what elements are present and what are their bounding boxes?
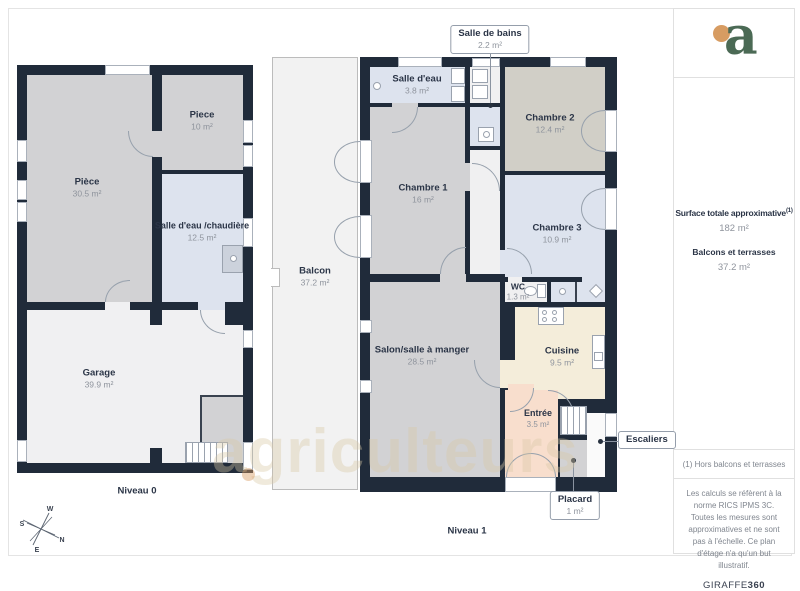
legal-text: Les calculs se réfèrent à la norme RICS … xyxy=(674,479,794,572)
room-label-wc: WC 1.3 m² xyxy=(507,281,530,302)
brand-logo: a xyxy=(724,11,758,63)
surface-panel: Surface totale approximative(1) 182 m² B… xyxy=(673,77,795,450)
window xyxy=(360,320,372,333)
callout-salle-de-bains: Salle de bains 2.2 m² xyxy=(450,25,529,54)
room-label-garage: Garage 39.9 m² xyxy=(83,367,116,390)
entry-door-opening xyxy=(505,477,556,492)
room-label-entree: Entrée 3.5 m² xyxy=(524,408,552,430)
room-label-salon: Salon/salle à manger 28.5 m² xyxy=(375,344,470,367)
logo-panel: a xyxy=(673,8,795,78)
window xyxy=(398,57,442,67)
window xyxy=(17,180,27,200)
window xyxy=(243,442,253,470)
room-label-chambre1: Chambre 1 16 m² xyxy=(398,182,447,205)
window xyxy=(605,110,617,152)
window xyxy=(360,380,372,393)
compass-s: S xyxy=(20,521,25,528)
footnote-panel: (1) Hors balcons et terrasses xyxy=(673,449,795,479)
compass-n: N xyxy=(59,537,64,544)
room-label-chambre2: Chambre 2 12.4 m² xyxy=(525,112,574,135)
window xyxy=(605,413,617,437)
room-label-cuisine: Cuisine 9.5 m² xyxy=(545,345,579,368)
watermark-dot xyxy=(242,468,255,481)
compass-e: E xyxy=(35,547,40,554)
balcony-value: 37.2 m² xyxy=(674,262,794,273)
washer-icon xyxy=(472,69,488,83)
window xyxy=(550,57,586,67)
floorplan-canvas: Pièce 30.5 m² Piece 10 m² Salle d'eau /c… xyxy=(0,0,800,564)
room-label-chambre3: Chambre 3 10.9 m² xyxy=(532,222,581,245)
stairs-icon xyxy=(560,406,587,435)
room-escaliers xyxy=(587,413,605,477)
compass-w: W xyxy=(47,506,54,513)
window xyxy=(472,58,500,67)
legal-panel: Les calculs se réfèrent à la norme RICS … xyxy=(673,478,795,554)
sink-icon xyxy=(451,86,465,102)
window xyxy=(243,120,253,143)
toilet-icon xyxy=(537,284,546,298)
room-label-balcon: Balcon 37.2 m² xyxy=(299,265,331,288)
window xyxy=(243,330,253,348)
level-label-niveau0: Niveau 0 xyxy=(117,486,156,497)
room-label-piece-grande: Pièce 30.5 m² xyxy=(73,176,102,199)
balcony-title: Balcons et terrasses xyxy=(674,247,794,257)
window xyxy=(605,188,617,230)
balcony-door xyxy=(360,140,372,183)
surface-title: Surface totale approximative(1) xyxy=(674,208,794,218)
brand-name: GIRAFFE360 xyxy=(674,580,794,591)
sink-icon xyxy=(451,68,465,84)
footnote-text: (1) Hors balcons et terrasses xyxy=(683,460,786,469)
window xyxy=(105,65,150,75)
window xyxy=(17,202,27,222)
window xyxy=(17,440,27,462)
stairs-icon xyxy=(185,442,228,463)
window xyxy=(243,145,253,167)
callout-escaliers: Escaliers xyxy=(618,431,676,449)
level-label-niveau1: Niveau 1 xyxy=(447,526,486,537)
room-label-piece: Piece 10 m² xyxy=(190,109,215,132)
window xyxy=(17,140,27,162)
sink-icon xyxy=(559,288,566,295)
room-label-salle-eau-chaudiere: Salle d'eau /chaudière 12.5 m² xyxy=(155,221,249,244)
compass-icon: W S E N xyxy=(8,494,80,562)
shower-icon xyxy=(373,82,381,90)
balcony-door xyxy=(360,215,372,258)
callout-placard: Placard 1 m² xyxy=(550,491,600,520)
surface-value: 182 m² xyxy=(674,223,794,234)
room-label-salle-eau: Salle d'eau 3.8 m² xyxy=(392,73,441,96)
washer-icon xyxy=(472,85,488,99)
